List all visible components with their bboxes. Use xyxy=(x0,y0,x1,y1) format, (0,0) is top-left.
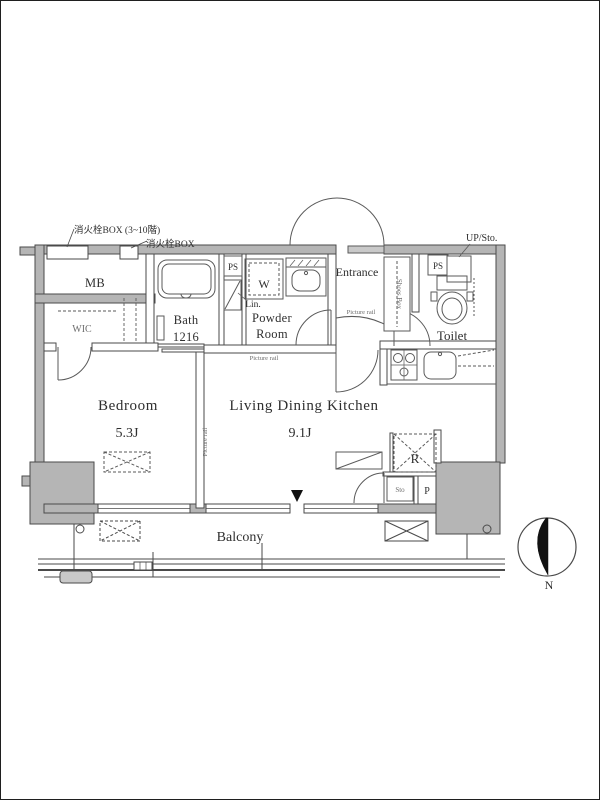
bath-fixtures xyxy=(157,260,215,340)
mb-label: MB xyxy=(85,276,105,290)
wic-door-arc xyxy=(58,347,91,380)
sto-door-arc xyxy=(354,473,384,503)
wall-sto-top xyxy=(383,472,436,476)
fire-box-2 xyxy=(120,246,138,259)
fire-box-upper-label: 消火栓BOX (3~10階) xyxy=(74,224,160,236)
wic-marks xyxy=(58,298,136,342)
picture-rail-entrance-label: Picture rail xyxy=(347,309,376,316)
wall-kitchen-stub xyxy=(380,349,387,385)
wall-bath-right xyxy=(219,254,224,345)
wall-fridge-left xyxy=(390,433,393,472)
floor-plan-canvas: 消火栓BOX (3~10階) 消火栓BOX MB WIC Bath 1216 P… xyxy=(0,0,600,800)
wall-wic-bottom-a xyxy=(44,343,56,351)
toilet-arm-left xyxy=(431,292,437,301)
balcony-vent-box xyxy=(134,562,152,570)
toilet-fixtures xyxy=(428,244,474,324)
picture-rail-partition-label: Picture rail xyxy=(202,427,209,456)
ldk-size-label: 9.1J xyxy=(289,426,313,441)
kitchen-fixtures xyxy=(387,350,496,384)
fire-box-1-leader xyxy=(67,229,74,247)
wall-bath-left xyxy=(146,254,154,345)
column-left xyxy=(30,462,94,524)
powder-fixtures xyxy=(224,256,326,310)
refrigerator-label: R xyxy=(411,451,420,466)
sliding-door-bedroom xyxy=(158,344,204,352)
wall-powder-bottom xyxy=(204,345,336,353)
toilet-bowl xyxy=(437,292,467,324)
wall-right xyxy=(496,245,505,463)
wall-left xyxy=(35,245,44,470)
fire-box-1 xyxy=(47,246,88,259)
powder-room-label-1: Powder xyxy=(252,311,293,325)
vanity-basin xyxy=(292,270,320,291)
burner-1 xyxy=(394,354,403,363)
bedroom-size-label: 5.3J xyxy=(116,426,140,441)
balcony-drain-box xyxy=(60,571,92,583)
entrance-label: Entrance xyxy=(336,265,379,279)
bath-name-label: Bath xyxy=(174,313,199,327)
entrance-door-arc xyxy=(290,198,384,245)
up-sto-label: UP/Sto. xyxy=(466,233,497,244)
powder-room-label-2: Room xyxy=(256,327,288,341)
toilet-label: Toilet xyxy=(437,328,468,343)
genkan-step-line xyxy=(336,316,384,324)
counter-board-diagonal xyxy=(336,452,382,469)
wall-stub-left xyxy=(20,247,35,255)
wall-entrance-toilet xyxy=(412,254,419,312)
compass-north-label: N xyxy=(545,578,554,592)
pipe-space-label: P xyxy=(424,486,430,497)
bath-step xyxy=(157,316,164,340)
compass xyxy=(518,518,576,576)
toilet-arm-right xyxy=(467,292,473,301)
wall-bottom-a xyxy=(44,504,98,513)
ldk-name-label: Living Dining Kitchen xyxy=(229,398,378,414)
floor-plan-page: 消火栓BOX (3~10階) 消火栓BOX MB WIC Bath 1216 P… xyxy=(0,0,600,800)
shoes-box-label: Shoes Box xyxy=(395,279,403,310)
sink-faucet xyxy=(438,352,441,355)
compass-needle-icon xyxy=(537,518,548,575)
balcony-label: Balcony xyxy=(217,530,264,545)
interior-walls xyxy=(44,254,496,508)
bathtub-faucet xyxy=(181,294,191,298)
partition-marker-triangle xyxy=(291,490,303,502)
wall-mb-bottom xyxy=(35,294,155,303)
ps-left-label: PS xyxy=(228,262,238,272)
storage-label: Sto xyxy=(395,486,405,494)
ldk-door-arc xyxy=(336,350,378,392)
wall-top-right xyxy=(384,245,505,254)
ps-right-label: PS xyxy=(433,261,443,271)
labels: 消火栓BOX (3~10階) 消火栓BOX MB WIC Bath 1216 P… xyxy=(72,224,553,592)
bath-size-label: 1216 xyxy=(173,330,199,344)
fire-box-lower-label: 消火栓BOX xyxy=(146,238,195,250)
column-right xyxy=(436,462,500,534)
burner-2 xyxy=(406,354,415,363)
entrance-door-leaf xyxy=(348,246,384,253)
toilet-bowl-inner xyxy=(442,298,462,320)
powder-door-arc xyxy=(296,310,331,345)
drain-cap-left xyxy=(76,525,84,533)
washer-label: W xyxy=(258,277,270,291)
column-left-stub xyxy=(22,476,30,486)
picture-rail-powder-label: Picture rail xyxy=(250,355,279,362)
wall-bottom-c xyxy=(378,504,436,513)
bathtub-inner xyxy=(162,264,211,294)
furnishing xyxy=(104,434,436,501)
vanity-faucet xyxy=(304,271,307,274)
bathtub-outer xyxy=(158,260,215,298)
wall-sto-p-divider xyxy=(414,476,418,504)
windows xyxy=(98,490,378,513)
wic-label: WIC xyxy=(72,324,92,335)
bedroom-name-label: Bedroom xyxy=(98,398,158,414)
wall-wic-bottom-b xyxy=(92,343,158,351)
linen-label: Lin. xyxy=(245,300,261,310)
counter-dashed-b xyxy=(458,350,494,356)
balcony-area xyxy=(38,521,505,583)
